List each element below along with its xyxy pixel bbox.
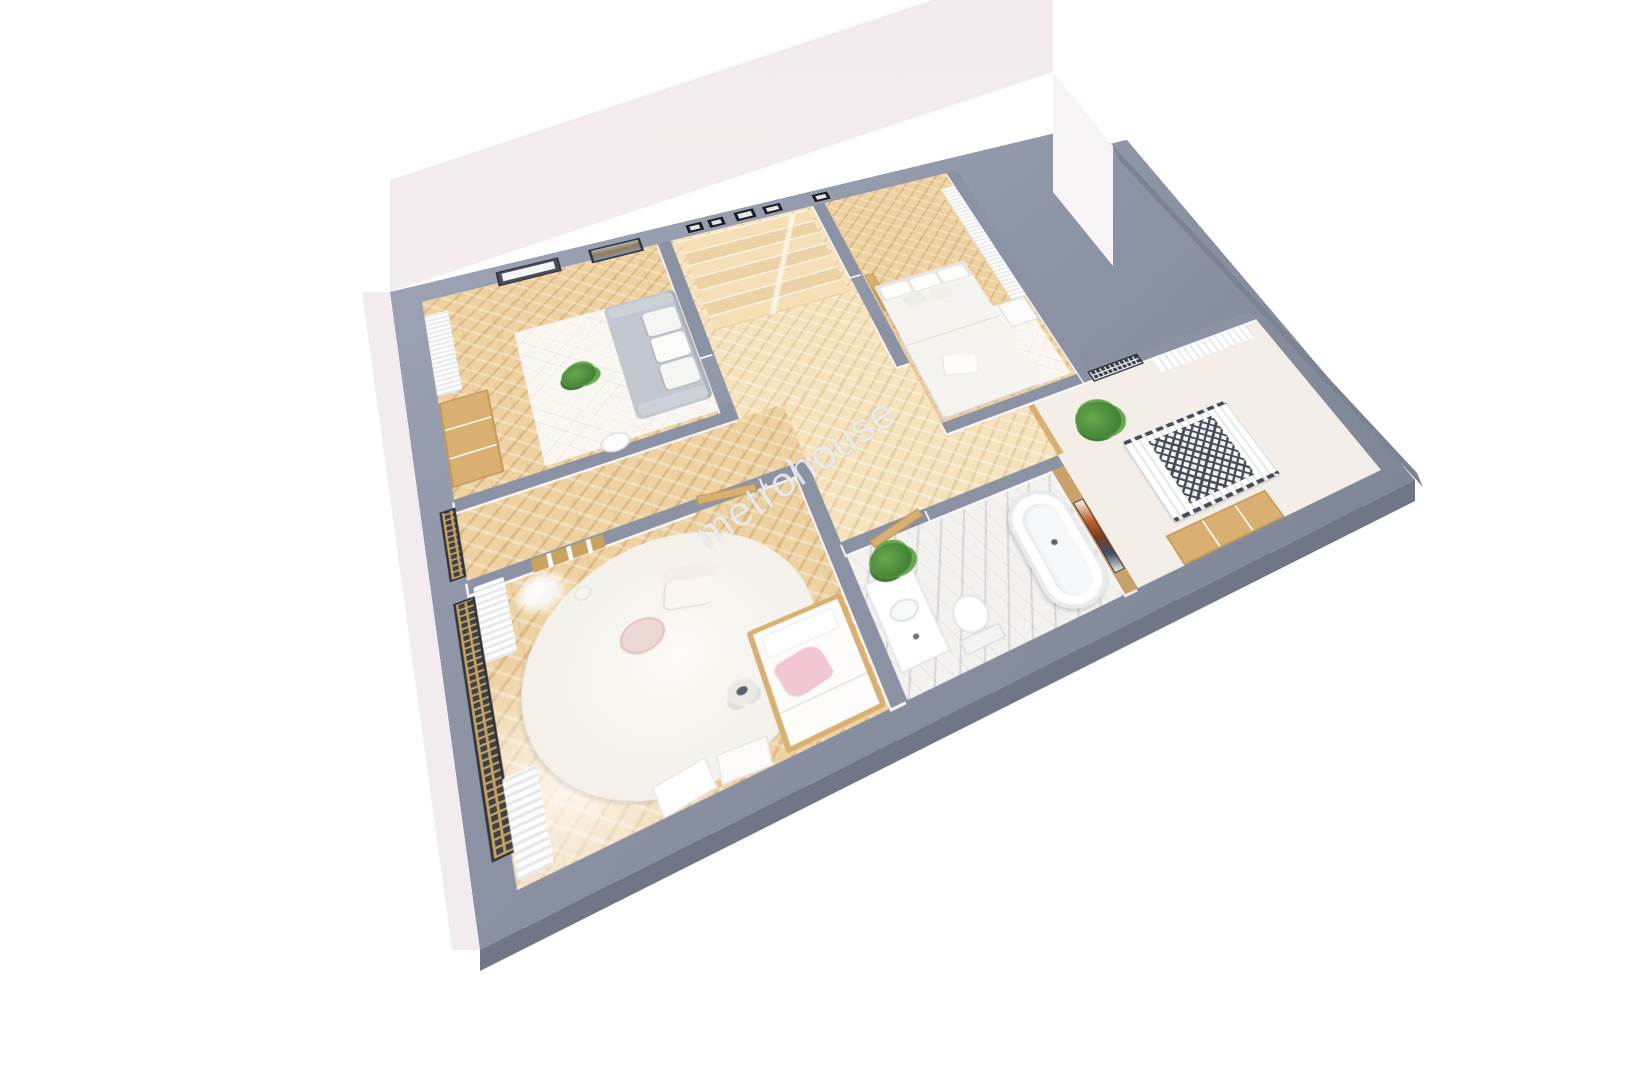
sideboard-line xyxy=(445,416,491,431)
dresser-line xyxy=(1202,520,1221,546)
kids-armchair xyxy=(661,560,717,610)
floor-plan-render: metrohouse xyxy=(0,0,1647,1080)
ladder-slat xyxy=(546,553,553,568)
sideboard-line xyxy=(450,444,497,460)
apartment-plan xyxy=(390,120,1415,950)
sink-faucet xyxy=(912,633,920,641)
dresser-line xyxy=(1234,505,1253,531)
sink-basin xyxy=(886,594,923,627)
blanket-fold xyxy=(905,315,999,346)
ladder-slat xyxy=(566,546,573,561)
teddy-face xyxy=(735,685,748,698)
rack-zigzag-wires xyxy=(1148,416,1255,504)
ladder-slat xyxy=(586,539,593,553)
bed-throw xyxy=(943,354,978,375)
bed-cushion xyxy=(929,286,953,300)
